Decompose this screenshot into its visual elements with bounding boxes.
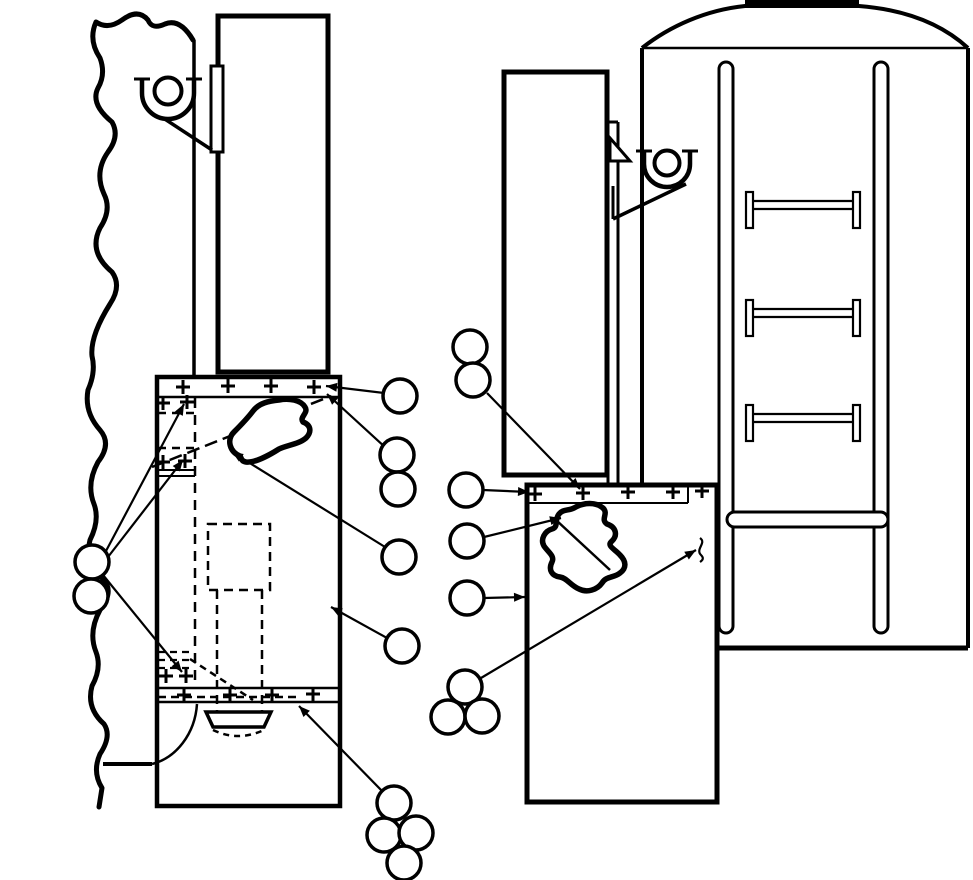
left-hinge-strip [211,66,223,152]
ladder-rung-web [753,201,853,209]
middle-door-panel [504,72,618,484]
callout-circle [74,579,108,613]
callout-circle [450,524,484,558]
ladder-rung-web [753,309,853,317]
callout-circle [385,629,419,663]
callout-circle [380,438,414,472]
callout-circle [449,473,483,507]
callout-circle [381,472,415,506]
callout-circle [377,786,411,820]
rung-end-cap [853,300,860,336]
left-hinge [134,66,223,152]
left-doorframe-panel [103,377,340,806]
callout-circle [456,363,490,397]
frame-dome-curve [642,6,968,48]
callout-circle [450,581,484,615]
right-skin-panel [527,485,717,802]
callout-circle [387,846,421,880]
right-hinge-pin [655,151,680,176]
support-bar [727,512,888,527]
rung-end-cap [746,192,753,228]
rung-end-cap [746,300,753,336]
callout-circle [453,330,487,364]
rung-end-cap [746,405,753,441]
right-hinge-wedge [610,138,630,161]
ladder-assembly [719,62,888,633]
left-hinge-pin [155,78,182,105]
left-door-outline [218,16,328,372]
left-door-panel [218,16,328,372]
rung-end-cap [853,405,860,441]
callout-circle [383,379,417,413]
rung-end-cap [853,192,860,228]
callout-circle [465,699,499,733]
frame-top-cap [745,0,859,7]
right-hinge [610,138,698,219]
panel-repair-diagram [0,0,973,880]
callout-circle [431,700,465,734]
ladder-rung-web [753,414,853,422]
callout-circle [75,545,109,579]
right-hinge-gusset [613,184,686,219]
callout-circle [382,540,416,574]
ladder-rail [874,62,888,633]
leader-arrowhead-icon [514,593,525,602]
ladder-rail [719,62,733,633]
middle-door-outline [504,72,607,475]
illustration-page [0,0,973,880]
handle-pocket [206,712,271,727]
middle-hinge-strip [608,122,618,484]
